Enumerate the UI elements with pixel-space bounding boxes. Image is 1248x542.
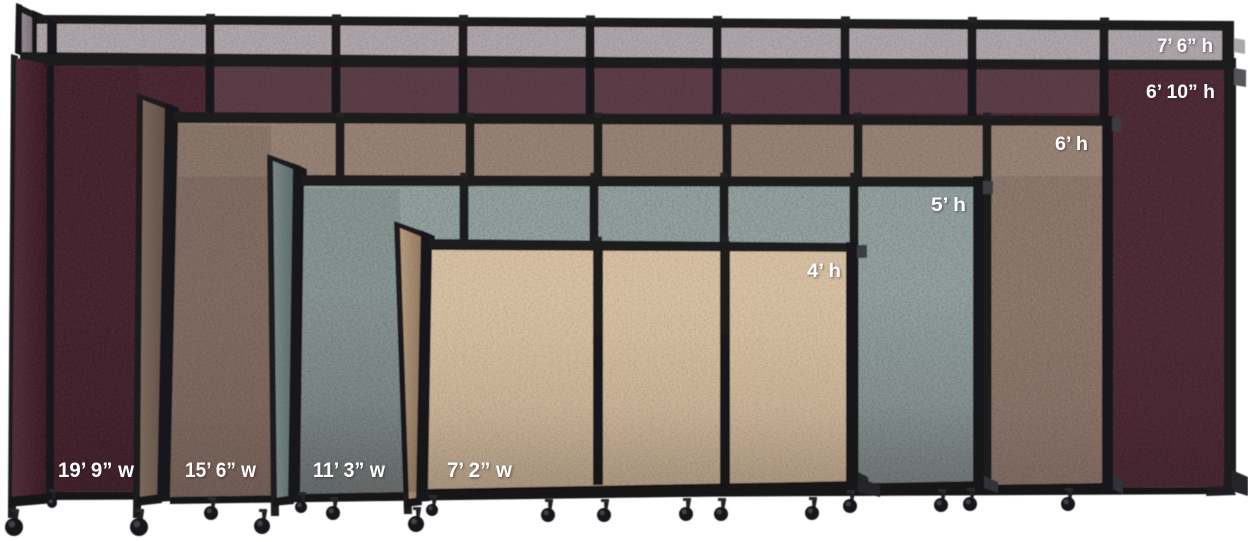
svg-text:7’ 6” h: 7’ 6” h bbox=[1157, 36, 1213, 57]
svg-text:11’ 3” w: 11’ 3” w bbox=[313, 458, 385, 482]
svg-text:6’ 10” h: 6’ 10” h bbox=[1146, 82, 1215, 103]
svg-text:7’ 2” w: 7’ 2” w bbox=[447, 458, 512, 482]
svg-text:4’ h: 4’ h bbox=[807, 261, 841, 282]
svg-text:6’ h: 6’ h bbox=[1055, 134, 1088, 155]
svg-text:5’ h: 5’ h bbox=[931, 195, 966, 216]
svg-text:15’ 6” w: 15’ 6” w bbox=[185, 458, 256, 482]
svg-text:19’ 9” w: 19’ 9” w bbox=[58, 458, 134, 482]
